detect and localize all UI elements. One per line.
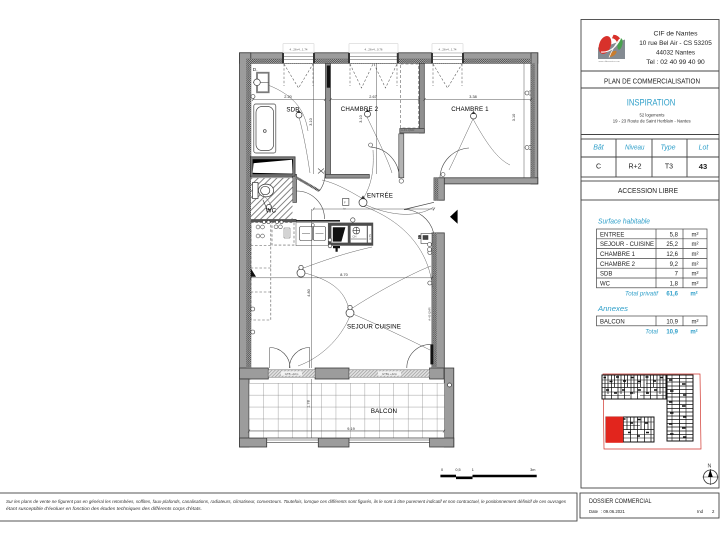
svg-text:m²: m²: [690, 291, 697, 298]
svg-text:Lot: Lot: [699, 145, 710, 152]
svg-text:Annexes: Annexes: [597, 304, 628, 313]
svg-text:5,8: 5,8: [670, 232, 679, 238]
svg-text:CIF de Nantes: CIF de Nantes: [654, 31, 698, 38]
svg-text:4.80: 4.80: [307, 289, 311, 296]
svg-text:ENTREE: ENTREE: [600, 232, 624, 238]
svg-text:3.10: 3.10: [309, 118, 313, 125]
svg-text:0: 0: [441, 468, 443, 472]
svg-text:D.: D.: [253, 67, 258, 73]
svg-text:43: 43: [699, 162, 707, 171]
svg-text:4...26+4...1.74: 4...26+4...1.74: [439, 48, 457, 52]
svg-text:Total privatif: Total privatif: [625, 292, 659, 298]
svg-text:BALCON: BALCON: [371, 408, 397, 415]
svg-text:3m: 3m: [530, 468, 535, 472]
svg-text:m²: m²: [692, 272, 699, 278]
svg-text:Surface habitable: Surface habitable: [598, 217, 650, 226]
svg-text:ETS: ETS: [368, 234, 372, 240]
svg-text:BALCON: BALCON: [600, 319, 625, 325]
svg-text:1: 1: [472, 468, 474, 472]
svg-text:19 - 23 Route de Saint Herblai: 19 - 23 Route de Saint Herblain - Nantes: [613, 118, 692, 123]
svg-text:Ind: Ind: [697, 509, 704, 514]
svg-text:m²: m²: [692, 319, 699, 325]
svg-text:m²: m²: [692, 242, 699, 248]
svg-text:4...26+4...0.76: 4...26+4...0.76: [365, 48, 383, 52]
svg-text:m²: m²: [692, 252, 699, 258]
svg-text:12,6: 12,6: [666, 252, 678, 258]
svg-text:N: N: [708, 464, 712, 470]
svg-text:ENTRÉE: ENTRÉE: [367, 193, 393, 200]
svg-text:tv: tv: [344, 207, 347, 211]
svg-text:: 09.06.2021: : 09.06.2021: [601, 509, 626, 514]
svg-text:étant susceptible d'évoluer en: étant susceptible d'évoluer en fonction …: [6, 506, 202, 511]
svg-text:1.78: 1.78: [307, 400, 311, 407]
svg-text:Niveau: Niveau: [625, 145, 645, 152]
svg-text:44032 Nantes: 44032 Nantes: [656, 50, 695, 57]
svg-text:CHAMBRE 1: CHAMBRE 1: [600, 252, 636, 258]
svg-text:25,2: 25,2: [666, 242, 678, 248]
svg-text:SDB: SDB: [600, 272, 612, 278]
svg-text:CHAMBRE 1: CHAMBRE 1: [451, 106, 489, 113]
svg-text:m²: m²: [692, 232, 699, 238]
svg-text:F: F: [344, 201, 346, 205]
svg-text:www.cifdenantes.com: www.cifdenantes.com: [599, 60, 620, 63]
svg-text:2.67: 2.67: [369, 95, 376, 99]
svg-text:3.38: 3.38: [469, 95, 476, 99]
svg-text:DOSSIER COMMERCIAL: DOSSIER COMMERCIAL: [589, 498, 652, 505]
svg-text:2.20: 2.20: [284, 95, 291, 99]
svg-text:2: 2: [712, 509, 715, 514]
svg-text:9.19: 9.19: [347, 427, 354, 431]
svg-text:10,9: 10,9: [666, 330, 678, 336]
svg-text:WC: WC: [266, 207, 277, 214]
svg-text:61,6: 61,6: [666, 292, 678, 298]
svg-text:52 logements: 52 logements: [640, 112, 666, 117]
svg-text:T3: T3: [665, 164, 673, 171]
svg-text:CH: CH: [352, 235, 356, 239]
svg-text:9,2: 9,2: [670, 262, 679, 268]
svg-text:DB: DB: [418, 235, 422, 239]
svg-text:A-43-QMR: A-43-QMR: [428, 307, 432, 320]
svg-text:Type: Type: [660, 145, 675, 152]
svg-text:4...26+4...1.74: 4...26+4...1.74: [290, 48, 308, 52]
svg-text:SEJOUR CUISINE: SEJOUR CUISINE: [347, 324, 401, 331]
svg-text:1,8: 1,8: [670, 281, 679, 287]
svg-text:8.70: 8.70: [340, 273, 347, 277]
svg-text:0,5: 0,5: [455, 468, 460, 472]
svg-text:ACCESSION LIBRE: ACCESSION LIBRE: [618, 188, 678, 195]
svg-text:PLAN DE COMMERCIALISATION: PLAN DE COMMERCIALISATION: [604, 79, 700, 86]
svg-text:3.10: 3.10: [359, 115, 363, 122]
svg-text:GTB +42m: GTB +42m: [285, 372, 299, 376]
svg-text:3.10: 3.10: [512, 114, 516, 121]
svg-text:INSPIRATION: INSPIRATION: [627, 97, 676, 108]
svg-text:10,9: 10,9: [666, 319, 678, 325]
svg-text:Tel : 02 40 99 40 90: Tel : 02 40 99 40 90: [646, 59, 705, 66]
svg-text:m²: m²: [692, 262, 699, 268]
svg-text:R+2: R+2: [628, 164, 641, 171]
svg-text:SEJOUR - CUISINE: SEJOUR - CUISINE: [600, 242, 654, 248]
svg-text:GTBL +42m: GTBL +42m: [382, 372, 398, 376]
svg-text:10 rue Bel Air - CS 53205: 10 rue Bel Air - CS 53205: [639, 40, 712, 47]
svg-text:7: 7: [675, 272, 679, 278]
svg-text:Bât: Bât: [593, 145, 605, 152]
svg-text:m²: m²: [692, 281, 699, 287]
svg-text:m²: m²: [690, 329, 697, 336]
svg-text:Date: Date: [589, 509, 599, 514]
svg-text:CHAMBRE 2: CHAMBRE 2: [600, 262, 636, 268]
svg-text:Total: Total: [645, 330, 658, 336]
svg-text:SDB: SDB: [286, 107, 299, 114]
svg-text:C: C: [596, 164, 601, 171]
svg-text:CHAMBRE 2: CHAMBRE 2: [341, 106, 379, 113]
svg-text:Sur les plans de vente ne figu: Sur les plans de vente ne figurent pas e…: [6, 499, 567, 504]
svg-text:WC: WC: [600, 281, 611, 287]
svg-text:A-49-QMR: A-49-QMR: [401, 128, 414, 132]
